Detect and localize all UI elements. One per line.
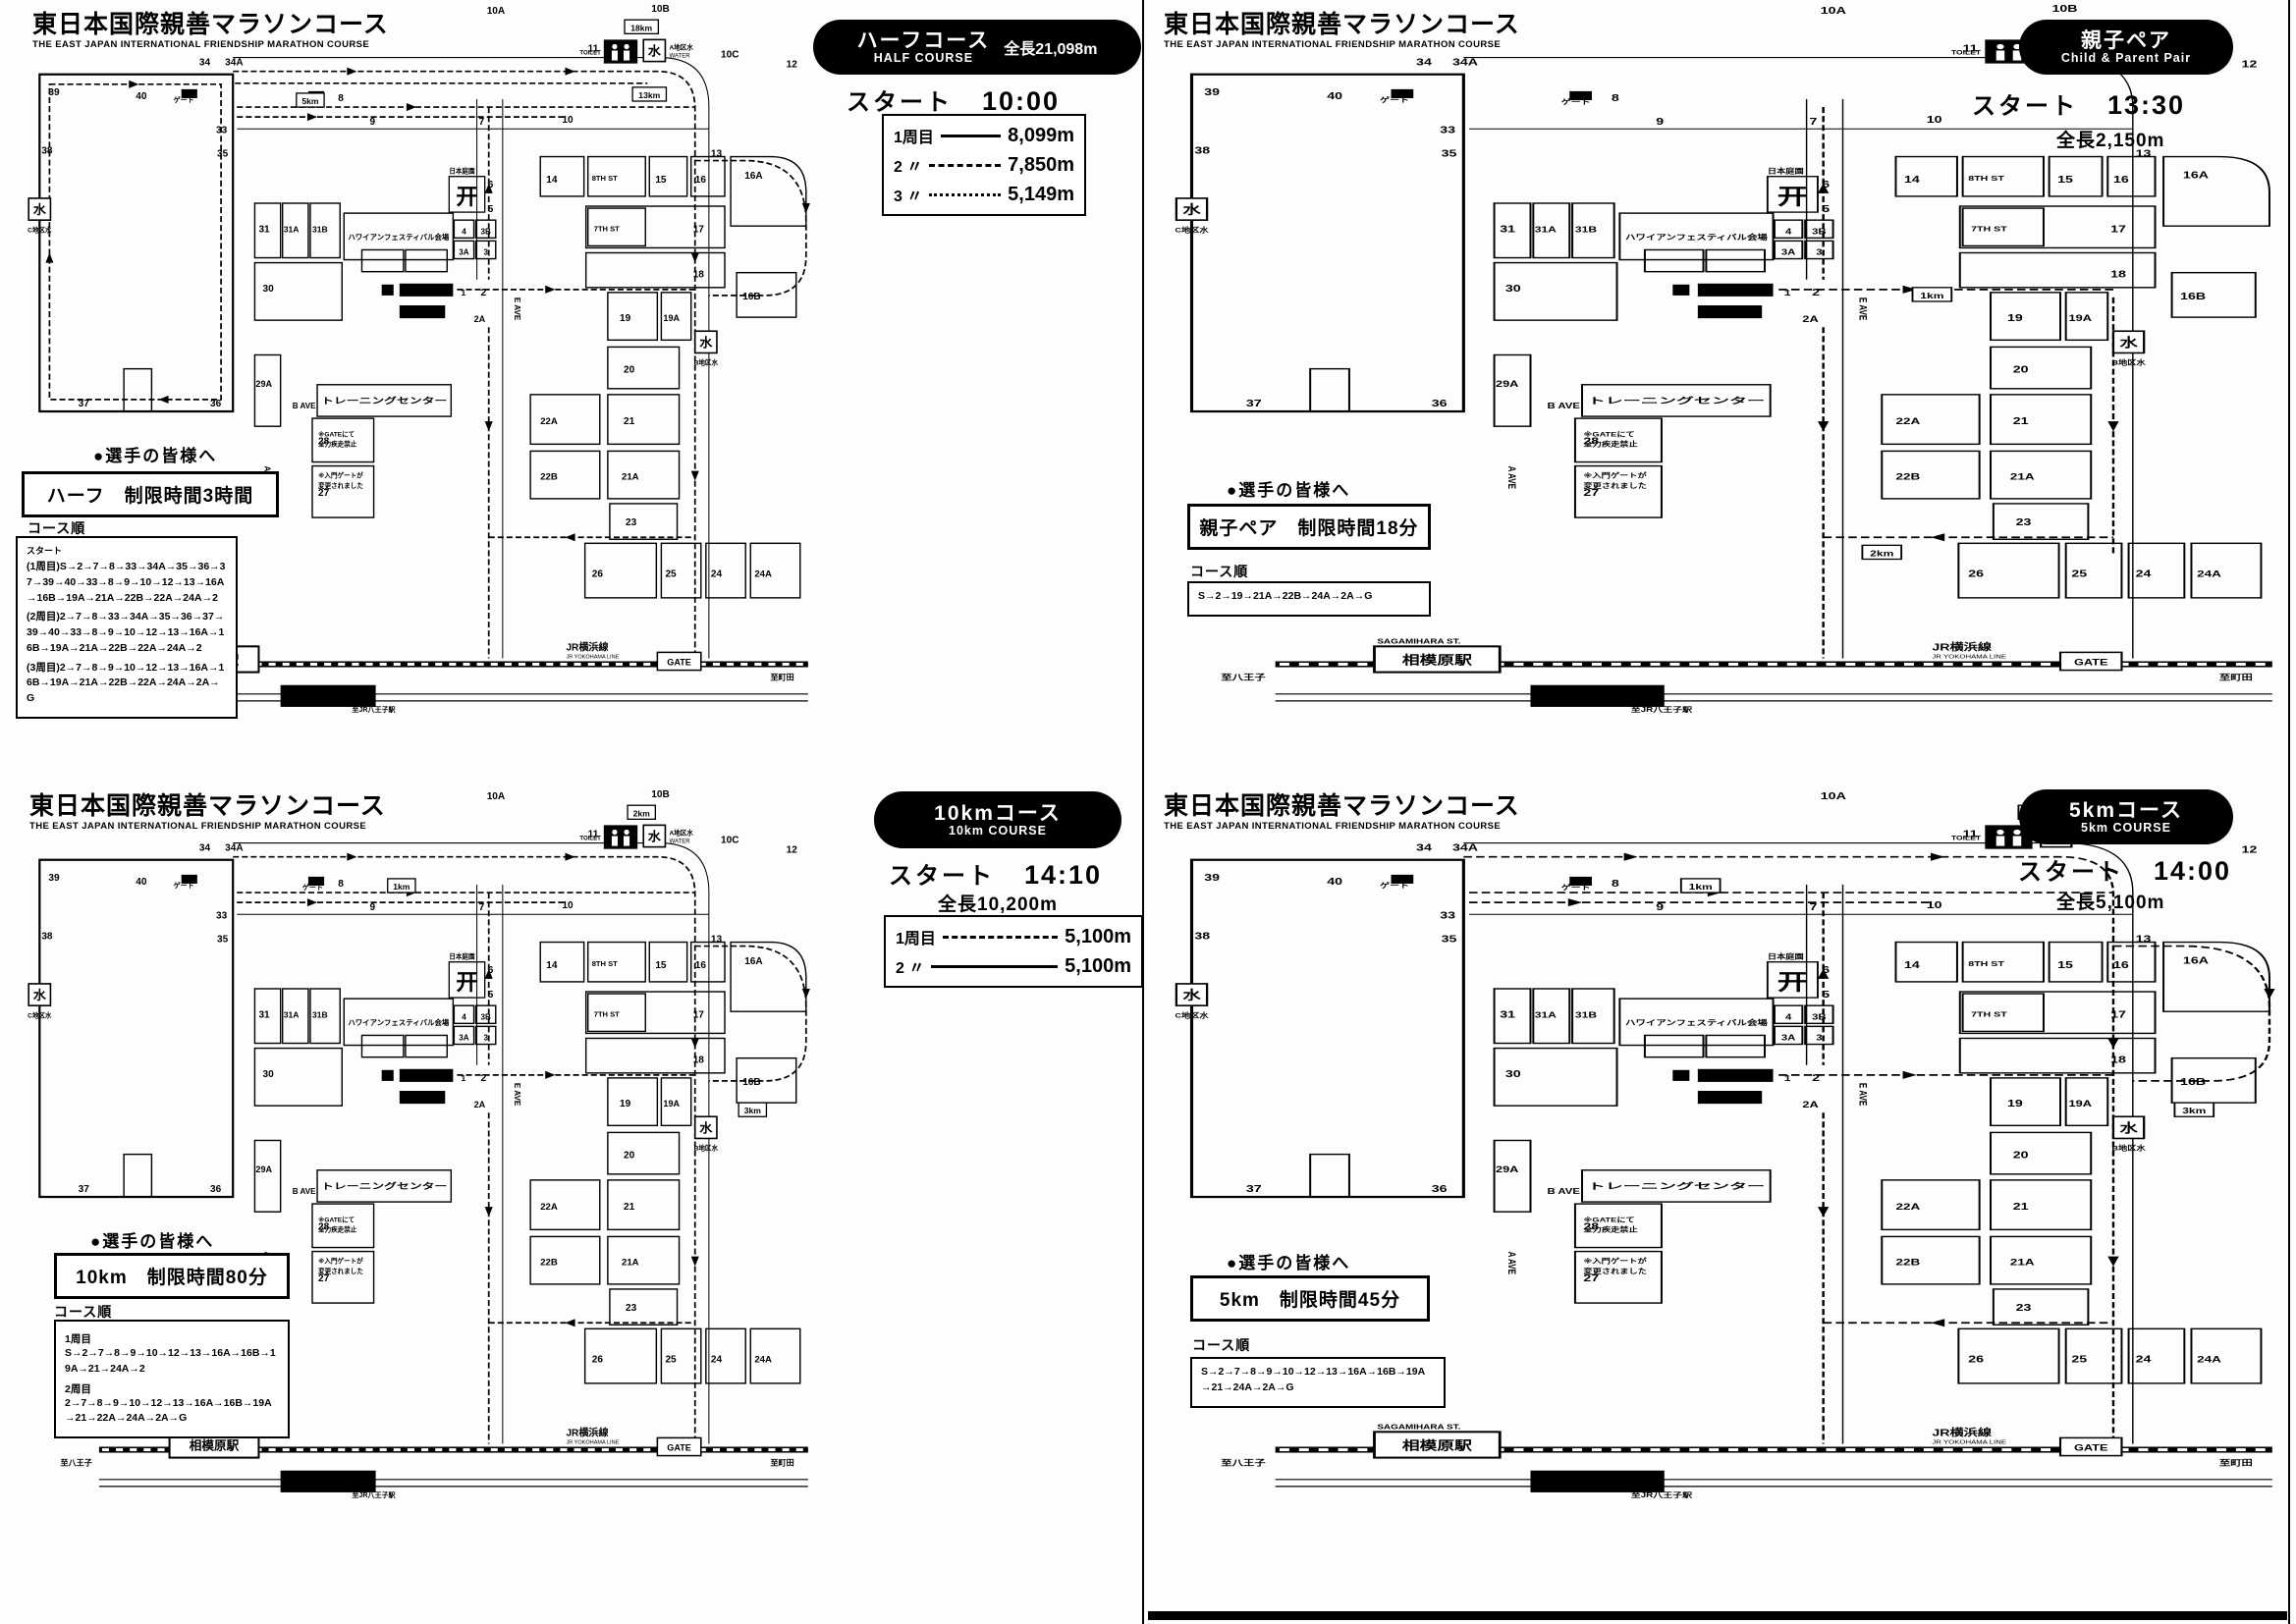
map-label: 31A bbox=[1535, 226, 1558, 235]
map-label: 12 bbox=[2242, 59, 2258, 70]
water-glyph: 水 bbox=[1182, 202, 1202, 218]
street-line bbox=[233, 843, 709, 1444]
map-label: 3A bbox=[459, 1033, 468, 1042]
edge-center-label: 至JR八王子駅 bbox=[1631, 1490, 1693, 1498]
map-label: 17 bbox=[2110, 1008, 2126, 1019]
map-label: 22A bbox=[1895, 416, 1920, 427]
order-sequence: (2周目)2→7→8→33→34A→35→36→37→39→40→33→8→9→… bbox=[27, 610, 227, 656]
city-block bbox=[361, 249, 403, 271]
map-note: ※入門ゲートが bbox=[318, 1257, 363, 1266]
city-block bbox=[1991, 451, 2091, 498]
map-note: ※GATEにて bbox=[1583, 1216, 1634, 1223]
badge-jp: ハーフコース bbox=[857, 29, 991, 52]
map-note: 変更されました bbox=[318, 481, 363, 490]
water-glyph: 水 bbox=[648, 829, 662, 844]
map-label: 16B bbox=[742, 1077, 761, 1088]
players-heading: ●選手の皆様へ bbox=[1227, 1249, 1350, 1273]
map-label: 10A bbox=[487, 791, 506, 802]
map-label: 7TH ST bbox=[1971, 225, 2007, 233]
map-label: 37 bbox=[1246, 398, 1262, 408]
map-note: 全力疾走禁止 bbox=[317, 1224, 357, 1233]
map-label: 3 bbox=[483, 1033, 488, 1042]
map-label: 24A bbox=[754, 569, 772, 580]
route16-label: 国道16号線 bbox=[1560, 1476, 1635, 1488]
distance-marker-label: 1km bbox=[1689, 883, 1713, 892]
map-label: 2A bbox=[1802, 315, 1818, 325]
gate-label: GATE bbox=[667, 1443, 691, 1453]
map-label: A AVE bbox=[1504, 1252, 1517, 1275]
map-label: 13 bbox=[711, 935, 723, 946]
map-label: 31A bbox=[284, 1009, 300, 1019]
start-time-row: スタート 13:30 bbox=[1972, 86, 2185, 121]
map-label: 19A bbox=[2069, 1100, 2092, 1110]
rail-name: JR横浜線 bbox=[1932, 641, 1992, 653]
order-sequence: (1周目)S→2→7→8→33→34A→35→36→37→39→40→33→8→… bbox=[27, 560, 227, 606]
map-label: ゲート bbox=[174, 881, 194, 890]
course-order-label: コース順 bbox=[27, 518, 85, 538]
water-caption: B地区水 bbox=[2111, 1144, 2146, 1152]
page-title: 東日本国際親善マラソンコース THE EAST JAPAN INTERNATIO… bbox=[1164, 793, 1520, 832]
water-glyph: 水 bbox=[648, 43, 662, 59]
place-label: トレーニングセンター bbox=[321, 395, 447, 406]
map-label: 16 bbox=[695, 960, 707, 971]
distance-marker-label: 1km bbox=[393, 882, 410, 892]
map-label: 20 bbox=[624, 1151, 635, 1162]
map-label: 12 bbox=[787, 60, 798, 71]
map-note: ※入門ゲートが bbox=[318, 471, 363, 480]
water-caption: C地区水 bbox=[1175, 226, 1209, 234]
page-title: 東日本国際親善マラソンコース THE EAST JAPAN INTERNATIO… bbox=[29, 793, 386, 832]
map-label: 31B bbox=[1575, 226, 1598, 235]
route-arrow bbox=[2107, 1257, 2118, 1267]
start-time: 13:30 bbox=[2107, 90, 2185, 121]
map-label: 19 bbox=[2007, 312, 2023, 323]
course-subtitle: THE EAST JAPAN INTERNATIONAL FRIENDSHIP … bbox=[1164, 39, 1520, 50]
route-arrow bbox=[407, 103, 416, 111]
map-label: 16B bbox=[742, 292, 761, 302]
badge-jp: 5kmコース bbox=[2069, 799, 2183, 822]
distance-marker-label: 2km bbox=[1870, 550, 1893, 559]
map-label: 31 bbox=[258, 1009, 270, 1020]
map-label: 21A bbox=[622, 1258, 639, 1269]
course-order-label: コース順 bbox=[1192, 1335, 1250, 1355]
map-label: 5 bbox=[488, 990, 494, 1001]
route-path bbox=[1463, 857, 2113, 937]
map-label: 26 bbox=[592, 569, 604, 580]
map-label: 37 bbox=[79, 1184, 90, 1195]
route-arrow bbox=[1931, 533, 1944, 541]
map-label: 8TH ST bbox=[1968, 174, 2004, 182]
toilet-caption: TOILET bbox=[579, 51, 601, 57]
distance-marker-label: 18km bbox=[630, 23, 652, 32]
toilet-figure bbox=[612, 830, 617, 835]
lap-row: 2 〃7,850m bbox=[894, 153, 1074, 177]
toilet-figure bbox=[1996, 50, 2005, 60]
start-time: 14:00 bbox=[2154, 856, 2231, 887]
edge-center-label: 至JR八王子駅 bbox=[352, 1490, 396, 1499]
map-label: 22A bbox=[1895, 1202, 1920, 1213]
route-arrow bbox=[565, 68, 574, 76]
map-label: 24 bbox=[2136, 1354, 2152, 1365]
map-label: 34A bbox=[1452, 842, 1478, 853]
map-label: 14 bbox=[1904, 174, 1920, 185]
route-arrow bbox=[1931, 1319, 1944, 1326]
map-label: 24A bbox=[2197, 1354, 2221, 1365]
map-label: 2 bbox=[1812, 287, 1820, 298]
toilet-figure bbox=[612, 836, 618, 845]
map-label: 16 bbox=[695, 175, 707, 186]
map-label: 2A bbox=[1802, 1101, 1818, 1110]
center-divider-line bbox=[1142, 0, 1144, 1624]
start-tick bbox=[1672, 1070, 1689, 1081]
city-block bbox=[731, 157, 806, 227]
map-label: 3B bbox=[1812, 1013, 1827, 1022]
water-caption: C地区水 bbox=[27, 1010, 52, 1019]
page-title: 東日本国際親善マラソンコース THE EAST JAPAN INTERNATIO… bbox=[32, 12, 389, 50]
street-line bbox=[1463, 843, 2132, 1444]
course-order-box: S→2→19→21A→22B→24A→2A→G bbox=[1187, 581, 1431, 617]
course-title: 東日本国際親善マラソンコース bbox=[32, 12, 389, 37]
city-block bbox=[1994, 504, 2089, 539]
start-time-row: スタート 14:10 bbox=[889, 856, 1102, 891]
city-block bbox=[39, 75, 233, 411]
city-block bbox=[731, 943, 806, 1012]
edge-right-label: 至町田 bbox=[770, 1459, 793, 1468]
city-block bbox=[254, 354, 280, 426]
map-label: ゲート bbox=[174, 95, 194, 104]
map-label: ゲート bbox=[1380, 95, 1409, 104]
route-arrow bbox=[307, 898, 317, 906]
total-length: 全長2,150m bbox=[2056, 126, 2164, 152]
bottom-scan-bar bbox=[1148, 1611, 2287, 1620]
course-title: 東日本国際親善マラソンコース bbox=[29, 793, 386, 819]
map-label: 7 bbox=[479, 117, 485, 128]
place-label: ハワイアンフェスティバル会場 bbox=[348, 232, 449, 242]
map-label: 4 bbox=[1785, 228, 1792, 237]
map-label: 5 bbox=[1822, 203, 1830, 214]
map-label: 3 bbox=[483, 247, 488, 256]
map-label: 21 bbox=[624, 416, 635, 427]
map-label: 22A bbox=[540, 1202, 558, 1213]
map-note: 全力疾走禁止 bbox=[1582, 440, 1637, 448]
gate-label: GATE bbox=[2074, 658, 2108, 668]
route-arrow bbox=[2264, 989, 2274, 999]
torii-glyph: 开 bbox=[1777, 185, 1808, 209]
water-caption-en: WATER bbox=[669, 839, 690, 845]
city-block bbox=[1706, 249, 1765, 271]
map-label: 3 bbox=[1816, 248, 1823, 257]
city-block bbox=[608, 293, 657, 340]
players-heading: ●選手の皆様へ bbox=[90, 1227, 214, 1252]
map-label: 25 bbox=[665, 569, 677, 580]
map-label: 37 bbox=[79, 399, 90, 409]
start-tick bbox=[382, 1070, 394, 1081]
start-label: スタート bbox=[889, 856, 995, 891]
route-arrow bbox=[691, 471, 699, 481]
map-note: 変更されました bbox=[1583, 1267, 1647, 1274]
edge-left-label: 至八王子 bbox=[1221, 673, 1266, 682]
map-label: 39 bbox=[48, 87, 60, 98]
city-block bbox=[1991, 395, 2091, 444]
map-label: ゲート bbox=[302, 883, 323, 892]
map-label: 2 bbox=[481, 1073, 487, 1084]
place-label: ハワイアンフェスティバル会場 bbox=[348, 1017, 449, 1027]
route-arrow bbox=[45, 252, 53, 262]
map-label: 37 bbox=[1246, 1183, 1262, 1194]
badge-half-course: ハーフコース HALF COURSE 全長21,098m bbox=[813, 20, 1141, 75]
map-label: 20 bbox=[2013, 364, 2029, 375]
map-label: 22B bbox=[540, 1258, 558, 1269]
city-block bbox=[610, 504, 678, 539]
map-label: 21A bbox=[2010, 472, 2035, 483]
map-label: 36 bbox=[1432, 398, 1448, 408]
rail-name-en: JR YOKOHAMA LINE bbox=[1932, 654, 2006, 660]
map-label: 19 bbox=[620, 313, 631, 324]
place-label: トレーニングセンター bbox=[1588, 396, 1765, 406]
course-subtitle: THE EAST JAPAN INTERNATIONAL FRIENDSHIP … bbox=[32, 39, 389, 50]
map-label: 日本庭園 bbox=[449, 167, 475, 176]
goal-text: GOAL bbox=[410, 1093, 436, 1103]
map-label: 2 bbox=[481, 288, 487, 298]
torii-glyph: 开 bbox=[1777, 970, 1808, 995]
toilet-figure bbox=[624, 836, 629, 845]
order-sequence: (3周目)2→7→8→9→10→12→13→16A→16B→19A→21A→22… bbox=[27, 661, 227, 707]
place-label: トレーニングセンター bbox=[321, 1180, 447, 1191]
map-label: 35 bbox=[1442, 934, 1457, 945]
toilet-figure bbox=[624, 44, 629, 49]
city-block bbox=[1991, 1132, 2091, 1173]
route-arrow bbox=[1931, 853, 1944, 861]
map-label: 16A bbox=[2183, 170, 2209, 181]
map-label: 35 bbox=[217, 149, 229, 160]
map-label: 19A bbox=[663, 1099, 680, 1109]
city-block bbox=[610, 1289, 678, 1325]
map-label: 日本庭園 bbox=[449, 952, 475, 961]
map-label: 7TH ST bbox=[594, 1009, 620, 1018]
station-name: 相模原駅 bbox=[1402, 1437, 1473, 1453]
route-arrow bbox=[1568, 898, 1582, 906]
place-label: ハワイアンフェスティバル会場 bbox=[1625, 1017, 1769, 1026]
gate-label: GATE bbox=[667, 658, 691, 668]
start-text: START bbox=[1715, 1072, 1756, 1082]
route-arrow bbox=[1903, 1071, 1917, 1079]
map-label: 16 bbox=[2113, 959, 2129, 970]
city-block bbox=[1645, 249, 1704, 271]
map-note: ※GATEにて bbox=[318, 1215, 355, 1223]
map-label: 7 bbox=[479, 902, 485, 913]
map-label: 35 bbox=[217, 935, 229, 946]
laps-box: 1周目8,099m2 〃7,850m3 〃5,149m bbox=[882, 114, 1086, 216]
water-glyph: 水 bbox=[2119, 1120, 2139, 1136]
order-lap-head: 2周目 bbox=[65, 1381, 279, 1396]
map-label: 38 bbox=[1194, 930, 1210, 941]
map-label: 17 bbox=[693, 1009, 705, 1020]
map-label: 34A bbox=[225, 58, 244, 69]
route16-label: 国道16号線 bbox=[1560, 690, 1635, 702]
map-label: 10A bbox=[1821, 790, 1846, 801]
map-label: 38 bbox=[41, 932, 53, 943]
laps-box: 1周目5,100m2 〃5,100m bbox=[884, 915, 1143, 988]
lap-row: 2 〃5,100m bbox=[896, 954, 1131, 978]
map-label: 30 bbox=[1505, 283, 1521, 294]
map-label: 日本庭園 bbox=[1768, 167, 1804, 175]
distance-marker-label: 1km bbox=[1920, 292, 1943, 300]
water-glyph: 水 bbox=[699, 1119, 713, 1135]
map-label: 21A bbox=[622, 472, 639, 483]
water-caption: C地区水 bbox=[1175, 1011, 1209, 1019]
goal-text: GOAL bbox=[1712, 1094, 1748, 1104]
toilet-caption: TOILET bbox=[1951, 835, 1982, 841]
map-label: 31B bbox=[312, 1009, 328, 1019]
edge-left-label: 至八王子 bbox=[1221, 1458, 1266, 1468]
route-arrow bbox=[691, 252, 699, 262]
map-note: 変更されました bbox=[1583, 481, 1647, 489]
map-label: 6 bbox=[488, 180, 494, 190]
route-arrow bbox=[691, 1257, 699, 1267]
map-label: 36 bbox=[210, 399, 222, 409]
map-label: 10B bbox=[2051, 3, 2077, 14]
map-label: 13 bbox=[711, 149, 723, 160]
page-title: 東日本国際親善マラソンコース THE EAST JAPAN INTERNATIO… bbox=[1164, 12, 1520, 50]
distance-marker-label: 5km bbox=[301, 96, 319, 106]
map-label: 36 bbox=[210, 1184, 222, 1195]
map-label: 30 bbox=[262, 1069, 274, 1080]
start-time: 10:00 bbox=[982, 86, 1060, 117]
players-heading: ●選手の皆様へ bbox=[93, 442, 217, 466]
course-order-box: 1周目S→2→7→8→9→10→12→13→16A→16B→19A→21→24A… bbox=[54, 1320, 290, 1438]
route16-label: 国道16号線 bbox=[301, 690, 355, 703]
total-length: 全長10,200m bbox=[938, 890, 1058, 916]
map-label: 17 bbox=[693, 224, 705, 235]
edge-right-label: 至町田 bbox=[2219, 673, 2253, 682]
toilet-figure bbox=[1996, 836, 2005, 845]
city-block bbox=[254, 1140, 280, 1212]
torii-glyph: 开 bbox=[456, 185, 477, 209]
map-label: 10A bbox=[487, 6, 506, 17]
badge-jp: 10kmコース bbox=[934, 802, 1062, 825]
map-label: 4 bbox=[462, 227, 466, 236]
city-block bbox=[1191, 860, 1463, 1197]
map-label: B AVE bbox=[1548, 1187, 1581, 1196]
map-label: E AVE bbox=[513, 1083, 521, 1107]
map-label: ゲート bbox=[1380, 881, 1409, 890]
map-label: 30 bbox=[262, 284, 274, 295]
map-label: 16B bbox=[2180, 291, 2206, 301]
map-label: 22A bbox=[540, 416, 558, 427]
city-block bbox=[1645, 1035, 1704, 1056]
route-arrow bbox=[565, 533, 574, 541]
badge-en: HALF COURSE bbox=[874, 52, 973, 66]
water-caption: A地区水 bbox=[669, 828, 693, 837]
map-label: 6 bbox=[1822, 179, 1830, 189]
map-label: ゲート bbox=[1561, 883, 1591, 892]
map-label: 31 bbox=[1500, 1008, 1515, 1019]
map-label: 16A bbox=[2183, 955, 2209, 966]
map-label: 29A bbox=[255, 379, 272, 389]
edge-left-label: 至八王子 bbox=[61, 1459, 92, 1468]
street-line bbox=[233, 58, 709, 659]
course-order-box: S→2→7→8→9→10→12→13→16A→16B→19A→21→24A→2A… bbox=[1190, 1357, 1446, 1408]
map-label: 33 bbox=[1440, 124, 1455, 135]
route-path bbox=[49, 84, 221, 400]
map-label: 17 bbox=[2110, 223, 2126, 234]
station-name: 相模原駅 bbox=[190, 1438, 240, 1453]
toilet-icon bbox=[604, 825, 637, 848]
map-label: 23 bbox=[626, 517, 637, 528]
map-label: 29A bbox=[1496, 379, 1518, 389]
start-text: START bbox=[411, 1071, 441, 1081]
city-block bbox=[608, 451, 680, 498]
map-label: 16A bbox=[744, 956, 763, 967]
water-caption-en: WATER bbox=[669, 54, 690, 60]
city-block bbox=[406, 249, 447, 271]
toilet-figure bbox=[612, 50, 618, 60]
right-edge-line bbox=[2288, 0, 2290, 1624]
place-label: トレーニングセンター bbox=[1588, 1181, 1765, 1192]
city-block bbox=[1495, 1140, 1531, 1212]
start-time-row: スタート 10:00 bbox=[847, 82, 1060, 117]
map-label: 22B bbox=[540, 472, 558, 483]
distance-marker-label: 13km bbox=[638, 90, 660, 100]
toilet-figure bbox=[1996, 830, 2003, 835]
start-text: START bbox=[411, 286, 441, 296]
map-label: 18 bbox=[693, 270, 705, 281]
map-label: 21 bbox=[624, 1202, 635, 1213]
map-label: 19 bbox=[2007, 1098, 2023, 1109]
route-arrow bbox=[485, 1207, 493, 1217]
water-caption: B地区水 bbox=[694, 1144, 719, 1153]
city-block bbox=[1991, 1180, 2091, 1229]
rail-name-en: JR YOKOHAMA LINE bbox=[566, 1439, 619, 1445]
city-block bbox=[124, 369, 151, 411]
route-arrow bbox=[545, 286, 555, 294]
map-label: 34 bbox=[1416, 57, 1432, 68]
map-note: ※入門ゲートが bbox=[1583, 471, 1647, 479]
map-label: 24 bbox=[2136, 568, 2152, 579]
route-arrow bbox=[2107, 1038, 2118, 1048]
map-label: 30 bbox=[1505, 1068, 1521, 1079]
map-label: 24A bbox=[2197, 568, 2221, 579]
map-label: 16A bbox=[744, 171, 763, 182]
toilet-figure bbox=[624, 50, 629, 60]
map-label: 8 bbox=[1612, 92, 1619, 103]
map-label: 15 bbox=[655, 960, 667, 971]
course-order-label: コース順 bbox=[1190, 562, 1248, 581]
map-label: 34 bbox=[199, 843, 211, 854]
city-block bbox=[1191, 75, 1463, 411]
badge-en: 10km COURSE bbox=[949, 825, 1047, 839]
map-label: 9 bbox=[1656, 116, 1664, 127]
map-label: 31A bbox=[284, 224, 300, 234]
map-label: B AVE bbox=[293, 1187, 316, 1196]
city-block bbox=[124, 1155, 151, 1197]
route-path bbox=[233, 857, 695, 937]
map-label: 34 bbox=[1416, 842, 1432, 853]
route-arrow bbox=[2107, 421, 2118, 431]
city-block bbox=[608, 347, 680, 388]
city-block bbox=[2163, 157, 2269, 227]
route-arrow bbox=[347, 853, 356, 861]
route-arrow bbox=[129, 81, 138, 88]
toilet-icon bbox=[604, 39, 637, 63]
map-label: 31 bbox=[258, 224, 270, 235]
route-arrow bbox=[802, 203, 810, 213]
city-block bbox=[406, 1035, 447, 1056]
map-label: 21A bbox=[2010, 1258, 2035, 1269]
map-label: 8TH ST bbox=[592, 959, 618, 968]
distance-marker-label: 3km bbox=[744, 1106, 762, 1115]
map-note: 全力疾走禁止 bbox=[1582, 1225, 1637, 1233]
